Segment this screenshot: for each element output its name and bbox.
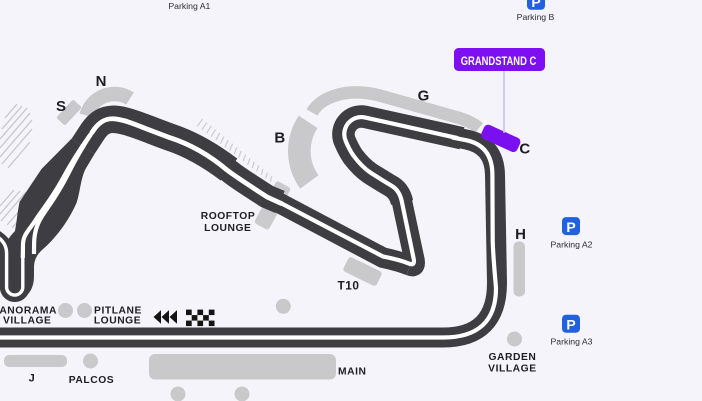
svg-text:H: H — [515, 226, 526, 243]
svg-text:GARDEN: GARDEN — [488, 352, 536, 363]
svg-text:N: N — [96, 73, 107, 90]
svg-text:VILLAGE: VILLAGE — [488, 363, 536, 374]
svg-text:Parking A3: Parking A3 — [550, 337, 592, 347]
svg-text:LOUNGE: LOUNGE — [94, 316, 141, 327]
svg-text:P: P — [531, 0, 540, 10]
svg-text:T10: T10 — [338, 279, 360, 293]
svg-text:VILLAGE: VILLAGE — [3, 316, 51, 327]
svg-text:ROOFTOP: ROOFTOP — [201, 211, 256, 222]
svg-text:P: P — [566, 317, 575, 333]
svg-text:G: G — [418, 87, 430, 104]
svg-text:Parking A2: Parking A2 — [550, 239, 592, 249]
svg-text:S: S — [56, 98, 66, 115]
svg-text:MAIN: MAIN — [338, 366, 367, 377]
svg-text:Parking B: Parking B — [517, 12, 555, 22]
svg-text:B: B — [274, 129, 285, 146]
svg-text:LOUNGE: LOUNGE — [204, 223, 251, 234]
svg-text:GRANDSTAND C: GRANDSTAND C — [461, 54, 537, 68]
svg-text:P: P — [566, 219, 575, 235]
svg-text:J: J — [29, 373, 36, 385]
svg-text:PALCOS: PALCOS — [69, 375, 114, 386]
svg-text:C: C — [519, 141, 530, 158]
svg-text:Parking A1: Parking A1 — [168, 1, 210, 11]
